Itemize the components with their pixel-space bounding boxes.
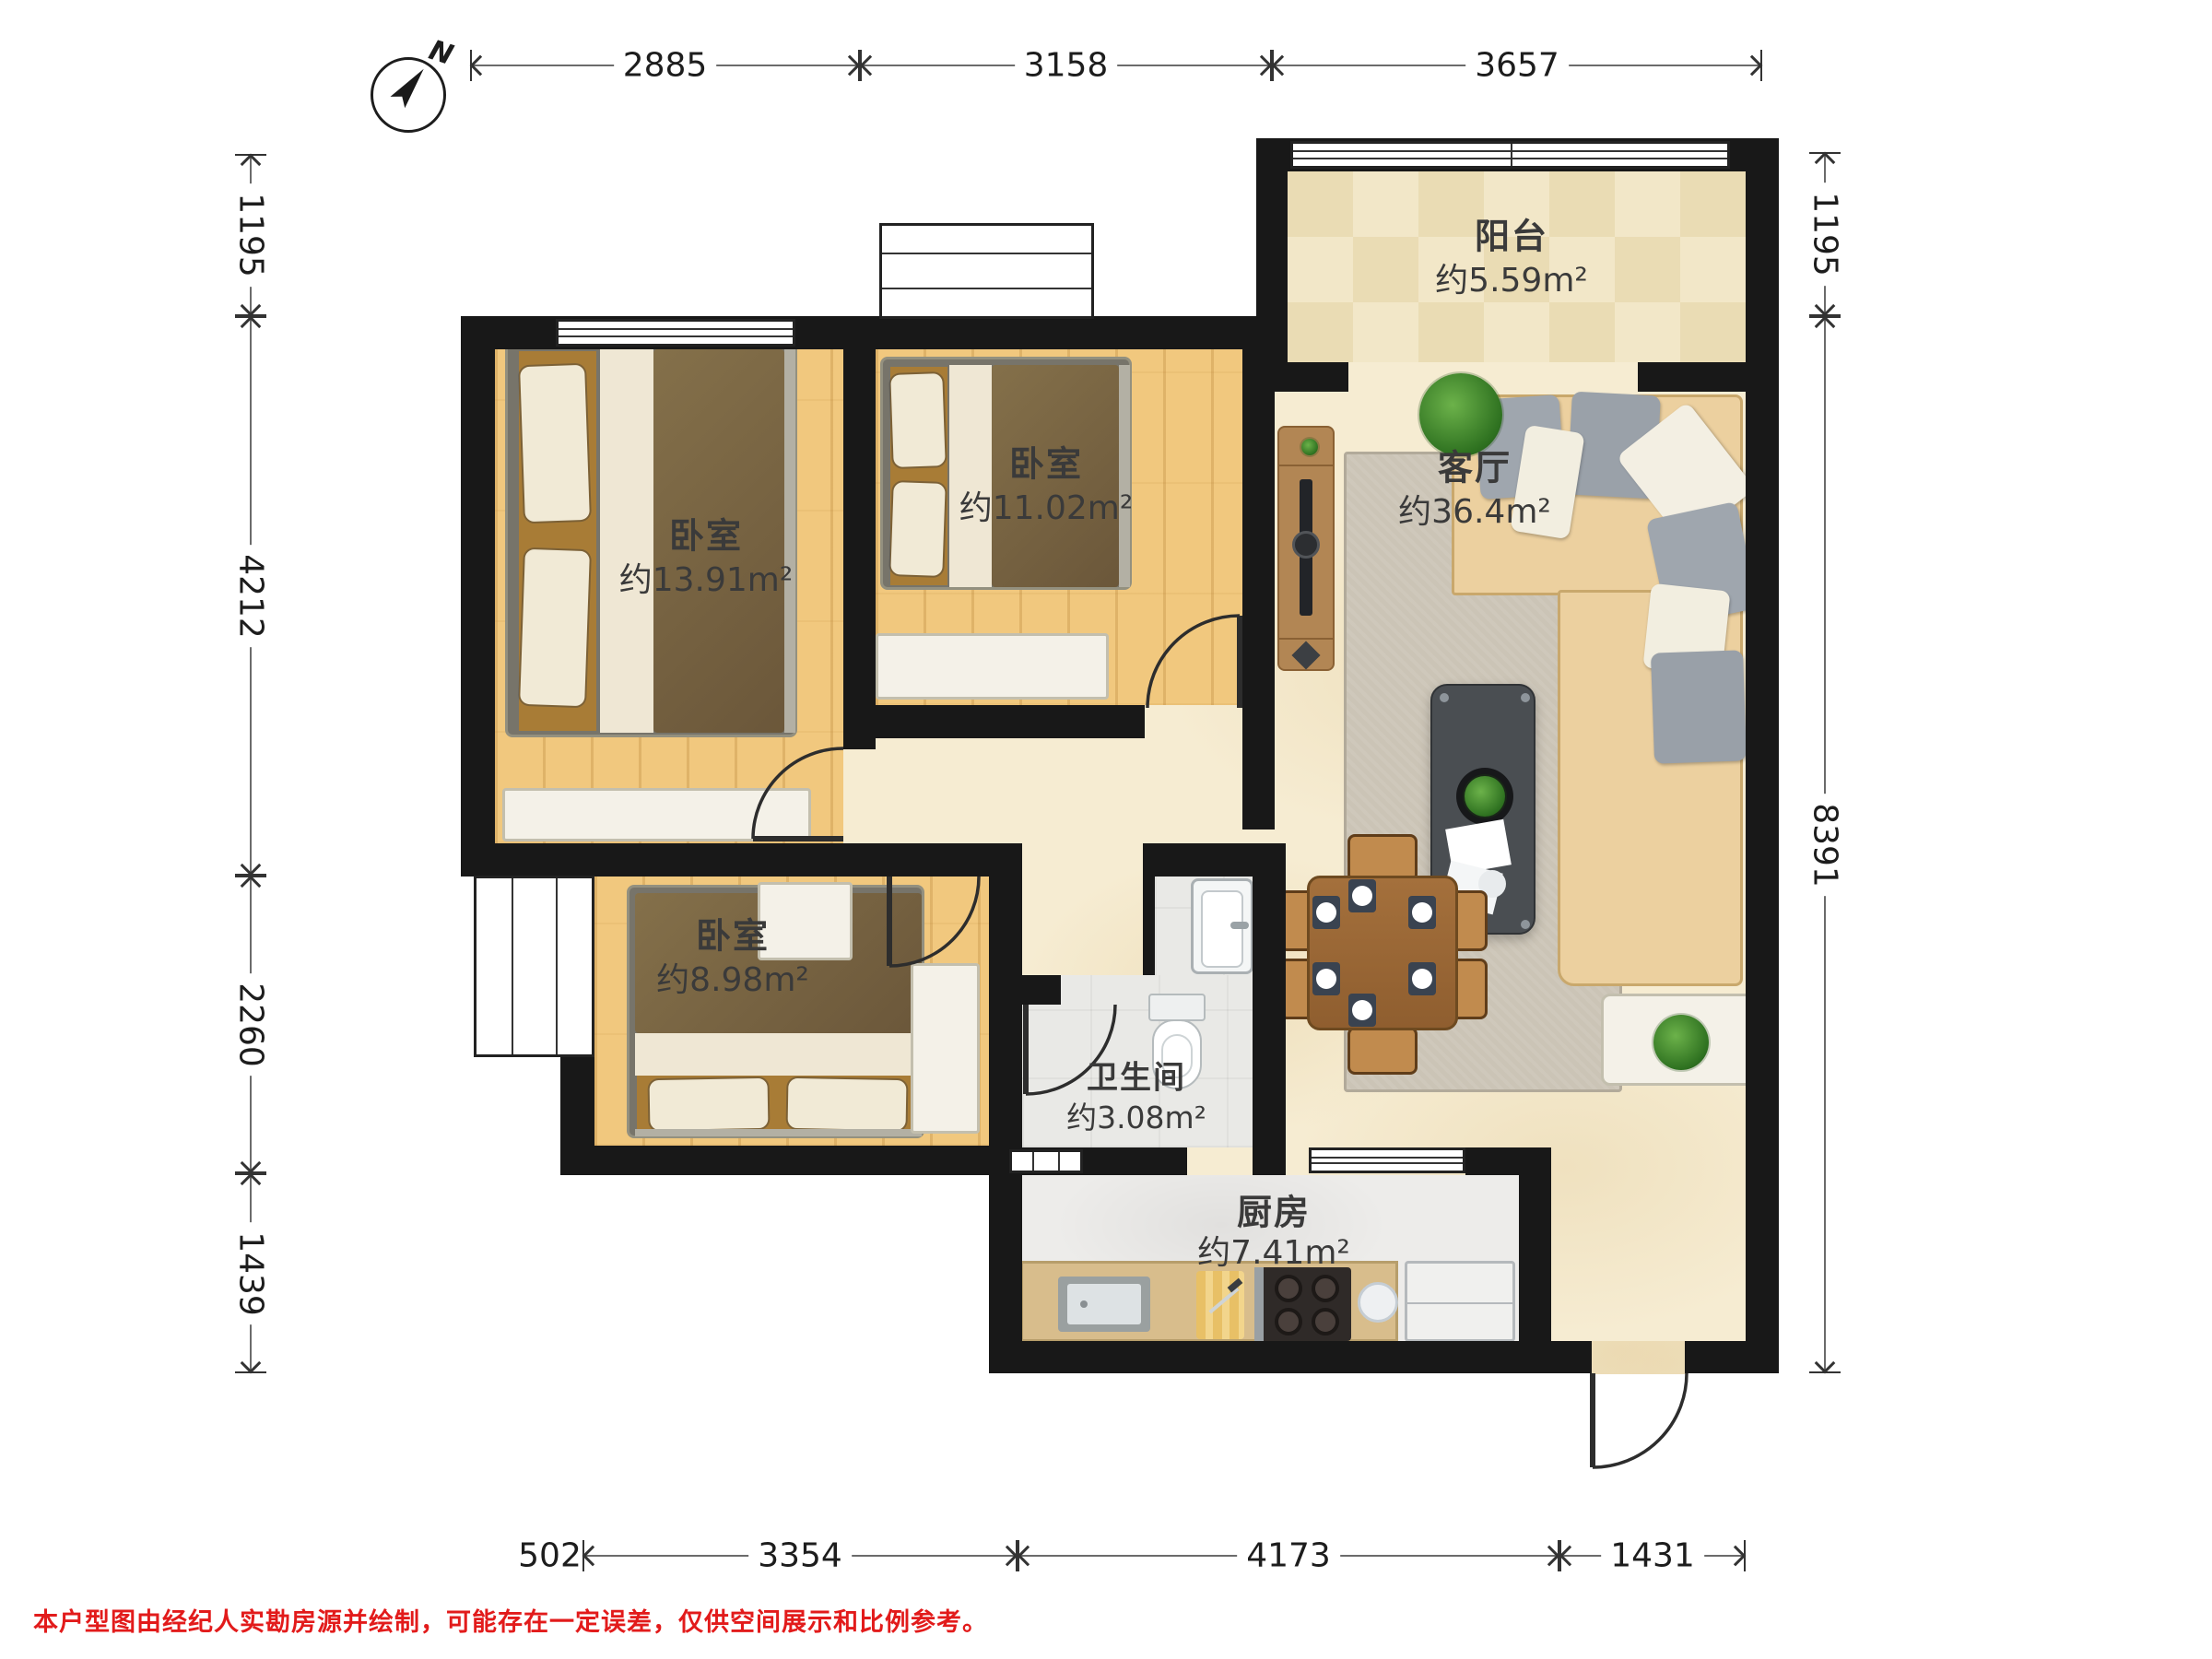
dining-chair	[1347, 1027, 1418, 1075]
dimension-bottom-1: 502	[517, 1540, 582, 1571]
bed-footboard	[635, 1129, 922, 1136]
pillow	[890, 373, 945, 467]
room-name-bedroom-master: 卧室	[669, 508, 743, 559]
stove	[1254, 1267, 1351, 1341]
dimension-left-2: 4212	[235, 316, 266, 876]
dimension-top-3: 3657	[1272, 50, 1762, 81]
compass-north-label: N	[425, 34, 457, 72]
wall	[989, 1341, 1592, 1373]
place-setting	[1348, 994, 1376, 1027]
bed-footboard	[784, 349, 795, 733]
side-table-plant	[1653, 1015, 1709, 1070]
tv-cabinet	[1277, 426, 1335, 671]
wall	[1685, 1341, 1779, 1373]
table-corner	[1521, 693, 1530, 702]
wall	[1256, 138, 1288, 362]
table-corner	[1440, 693, 1449, 702]
room-name-living: 客厅	[1438, 440, 1512, 490]
room-area-bathroom: 约3.08m²	[1066, 1093, 1206, 1137]
wall	[1746, 138, 1779, 1373]
dimension-bottom-3: 4173	[1018, 1540, 1559, 1571]
kitchen-bowl	[1358, 1282, 1398, 1323]
dimension-bottom-2: 3354	[582, 1540, 1018, 1571]
bed-sheet	[600, 349, 653, 733]
bench-second	[876, 633, 1109, 700]
place-setting	[1312, 962, 1340, 995]
fridge-handle	[1407, 1302, 1512, 1304]
place-setting	[1312, 896, 1340, 929]
room-area-bedroom-master: 约13.91m²	[619, 553, 794, 601]
knife	[1208, 1288, 1239, 1314]
cabinet-divider	[1279, 465, 1333, 466]
bay-window-bedroom-third	[474, 876, 594, 1057]
pillow	[650, 1078, 769, 1130]
bed-second	[880, 357, 1132, 590]
wall	[461, 316, 495, 876]
floor-threshold-entry	[1590, 1341, 1687, 1374]
toilet-tank	[1148, 994, 1206, 1021]
pillow	[520, 549, 590, 706]
burner	[1275, 1308, 1302, 1335]
room-area-kitchen: 约7.41m²	[1197, 1226, 1350, 1274]
place-setting	[1408, 896, 1436, 929]
bed-sheet	[949, 365, 992, 587]
sink-basin	[1201, 890, 1243, 968]
wall	[989, 843, 1022, 1373]
wardrobe-third	[911, 963, 980, 1134]
cabinet-plant	[1301, 439, 1318, 455]
wall	[876, 705, 1145, 738]
window-bedroom-master	[556, 319, 795, 347]
dimension-right-2: 8391	[1809, 316, 1841, 1373]
place-setting	[1348, 879, 1376, 912]
sink-faucet	[1230, 922, 1249, 929]
room-area-bedroom-second: 约11.02m²	[959, 481, 1134, 529]
cutting-board	[1196, 1271, 1244, 1339]
floor-plan: 卧室 约13.91m² 卧室 约11.02m² 卧室 约8.98m² 客厅 约3…	[0, 0, 2212, 1659]
room-name-balcony: 阳台	[1475, 208, 1548, 259]
sofa-cushion	[1651, 650, 1747, 763]
room-name-bedroom-third: 卧室	[696, 908, 770, 959]
fridge	[1405, 1261, 1515, 1342]
side-table	[1601, 994, 1756, 1086]
wall	[1519, 1147, 1551, 1341]
room-area-living: 约36.4m²	[1398, 485, 1551, 533]
dimension-bottom-4: 1431	[1559, 1540, 1746, 1571]
wall	[461, 843, 989, 877]
bed-master	[505, 339, 797, 737]
burner	[1312, 1308, 1339, 1335]
room-name-bedroom-second: 卧室	[1009, 436, 1083, 487]
dimension-top-1: 2885	[470, 50, 860, 81]
room-area-bedroom-third: 约8.98m²	[656, 953, 809, 1001]
dimension-right-1: 1195	[1809, 152, 1841, 316]
wall	[1638, 362, 1746, 392]
dimension-left-3: 2260	[235, 876, 266, 1173]
dresser-third	[758, 882, 853, 960]
bed-footboard	[1119, 365, 1130, 587]
tv-speaker	[1292, 531, 1320, 559]
compass-needle-icon	[371, 57, 441, 127]
dresser-master	[502, 788, 811, 841]
room-area-balcony: 约5.59m²	[1435, 253, 1588, 301]
wall	[1256, 362, 1348, 392]
dimension-left-1: 1195	[235, 154, 266, 316]
wall	[560, 1146, 989, 1175]
dimension-left-4: 1439	[235, 1173, 266, 1373]
table-plant	[1465, 776, 1505, 817]
pillow	[890, 482, 945, 576]
dimension-top-2: 3158	[860, 50, 1272, 81]
bathroom-sink	[1191, 878, 1253, 974]
wall	[843, 316, 876, 749]
disclaimer-text: 本户型图由经纪人实勘房源并绘制，可能存在一定误差，仅供空间展示和比例参考。	[33, 1602, 988, 1638]
wall	[1253, 843, 1286, 1175]
burner	[1312, 1275, 1339, 1302]
sink-drain	[1080, 1300, 1088, 1308]
pillow	[520, 365, 590, 522]
room-name-bathroom: 卫生间	[1087, 1053, 1186, 1098]
window-balcony	[1290, 141, 1730, 169]
cabinet-tray	[1291, 641, 1320, 669]
wall	[1022, 975, 1061, 1005]
wall	[1143, 876, 1155, 975]
bay-window-bedroom-second	[879, 223, 1094, 319]
table-corner	[1521, 920, 1530, 929]
stove-panel	[1254, 1267, 1264, 1341]
burner	[1275, 1275, 1302, 1302]
bed-sheet	[635, 1033, 922, 1076]
pillow	[788, 1078, 907, 1130]
place-setting	[1408, 962, 1436, 995]
wall	[1242, 316, 1275, 829]
door-entrance	[1593, 1373, 1687, 1467]
kitchen-sink	[1058, 1277, 1150, 1332]
window-mullion	[1511, 144, 1512, 166]
cabinet-divider	[1279, 638, 1333, 640]
sliding-door-kitchen	[1009, 1149, 1083, 1173]
window-kitchen-pass	[1309, 1147, 1465, 1173]
compass: N	[371, 57, 441, 127]
kitchen-sink-basin	[1067, 1284, 1141, 1324]
